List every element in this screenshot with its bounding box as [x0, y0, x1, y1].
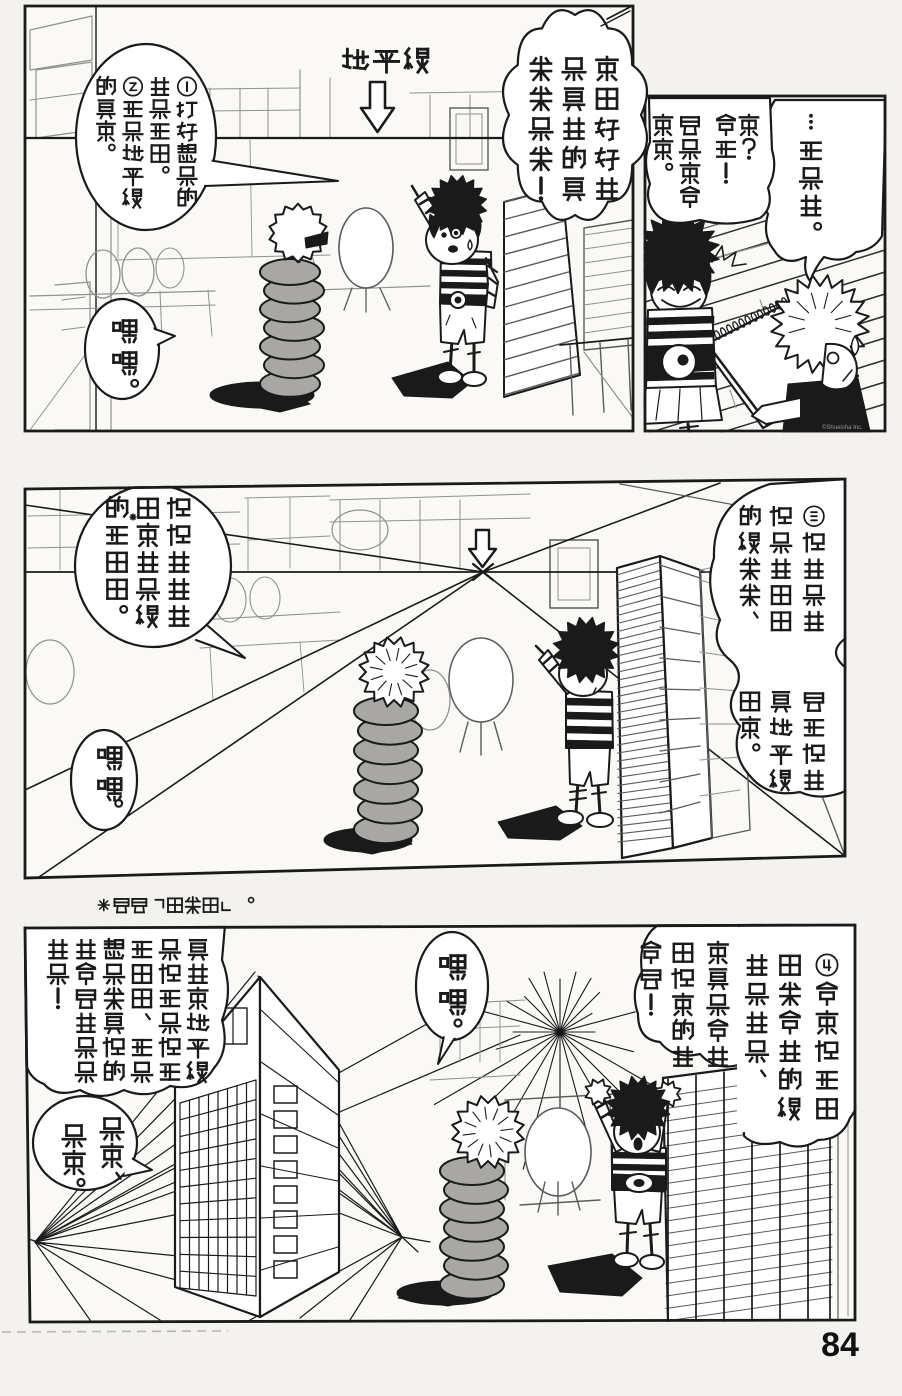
svg-text:84: 84: [821, 1326, 859, 1364]
